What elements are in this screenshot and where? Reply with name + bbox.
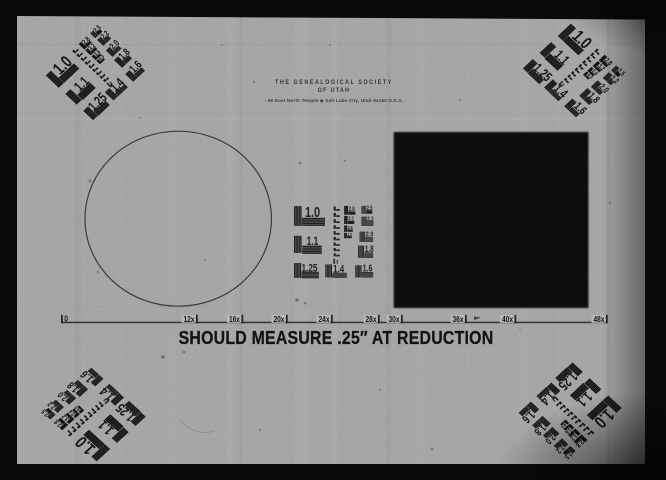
svg-text:- 50 East North Temple ◆ Salt: - 50 East North Temple ◆ Salt Lake City,… — [265, 98, 404, 103]
svg-text:28x: 28x — [365, 314, 376, 324]
svg-text:20x: 20x — [273, 314, 284, 324]
svg-text:OF UTAH: OF UTAH — [318, 88, 351, 94]
svg-text:SHOULD MEASURE .25″ AT REDUCTI: SHOULD MEASURE .25″ AT REDUCTION — [179, 328, 494, 348]
svg-text:24x: 24x — [318, 314, 329, 324]
svg-text:16x: 16x — [229, 314, 240, 324]
svg-text:0: 0 — [64, 314, 68, 324]
svg-text:THE GENEALOGICAL SOCIETY: THE GENEALOGICAL SOCIETY — [275, 80, 393, 86]
svg-text:36x: 36x — [452, 314, 463, 324]
svg-text:30x: 30x — [388, 314, 399, 324]
svg-text:12x: 12x — [183, 314, 194, 324]
svg-text:40x: 40x — [502, 314, 513, 324]
